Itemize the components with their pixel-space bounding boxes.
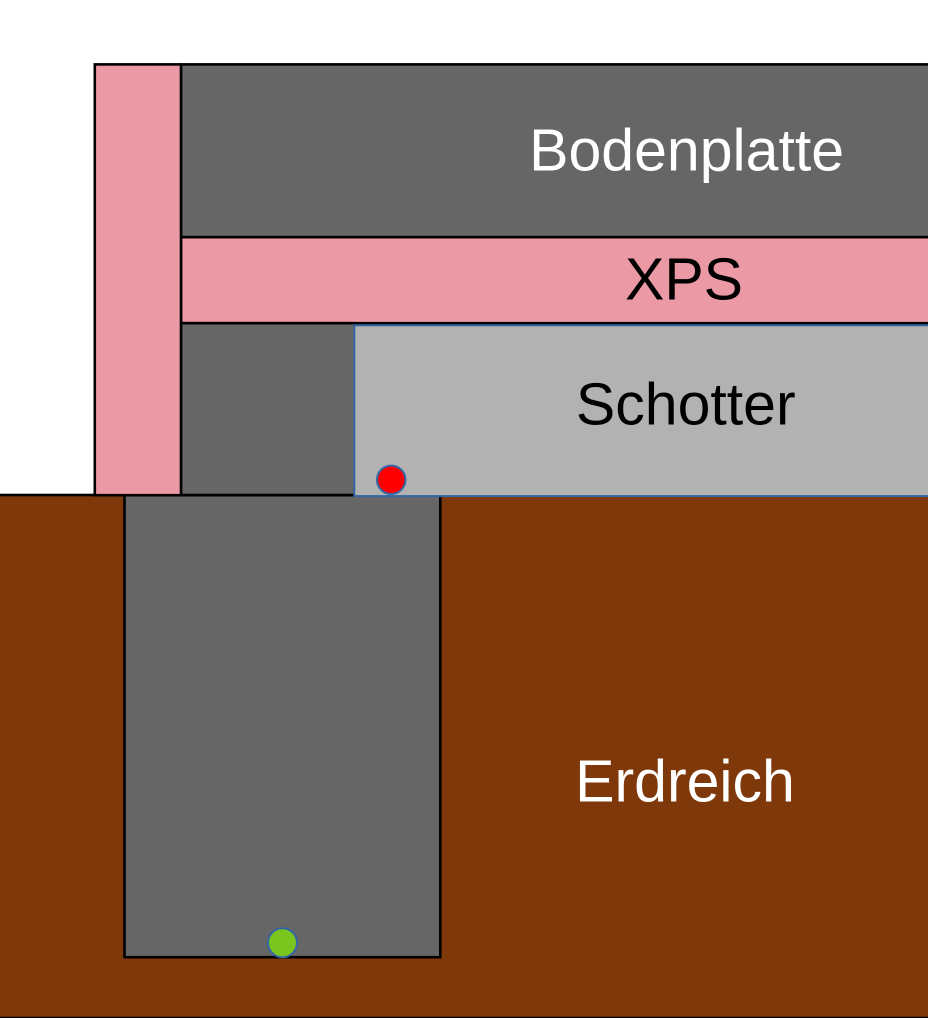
svg-text:Schotter: Schotter bbox=[576, 372, 796, 438]
svg-text:Bodenplatte: Bodenplatte bbox=[529, 118, 844, 184]
svg-text:Erdreich: Erdreich bbox=[575, 749, 795, 815]
svg-text:XPS: XPS bbox=[625, 247, 743, 313]
